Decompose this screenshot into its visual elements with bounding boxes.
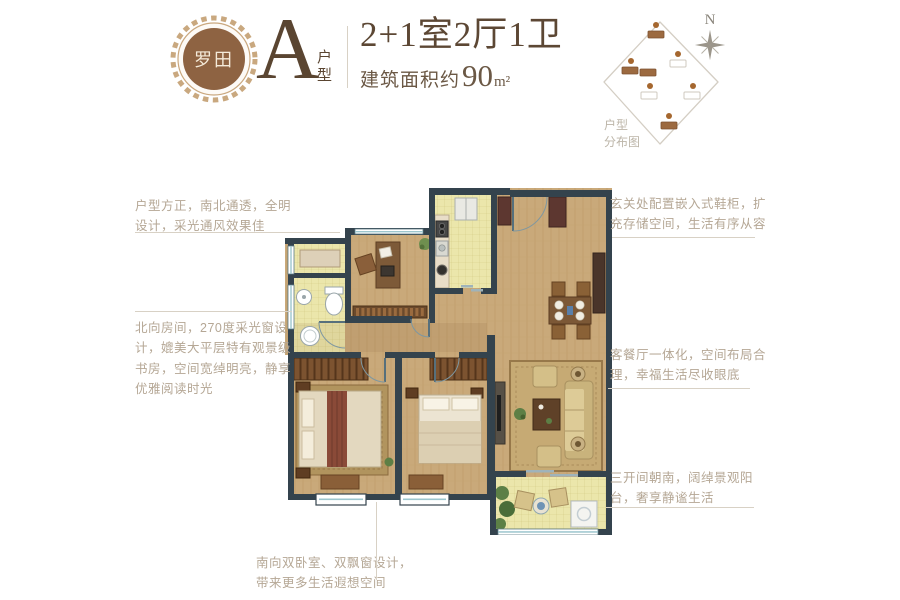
built-area: 建筑面积约 90 m² [360, 58, 510, 94]
leader-bottom [376, 502, 377, 580]
note-bottom: 南向双卧室、双飘窗设计， 带来更多生活遐想空间 [256, 553, 416, 594]
bay-window-bench [300, 250, 340, 267]
leader-right-middle [608, 388, 750, 389]
brand-badge-text: 罗田 [194, 50, 234, 70]
page-title: 2+1室2厅1卫 [360, 14, 563, 56]
unit-label-top: 户 [317, 50, 332, 67]
armchair [533, 366, 557, 387]
shoe-cabinet [498, 197, 511, 225]
bay-bench [409, 475, 443, 489]
note-left-middle: 北向房间，270度采光窗设 计，媲美大平层特有观景级 书房，空间宽绰明亮，静享 … [135, 318, 300, 399]
compass-star-icon [693, 28, 727, 62]
area-unit: m² [494, 74, 510, 91]
unit-type-letter: A [256, 2, 320, 98]
brand-medallion-icon: 罗田 [168, 13, 260, 105]
leader-right-bottom [606, 507, 754, 508]
living-room [495, 361, 602, 471]
note-right-middle: 客餐厅一体化，空间布局合 理，幸福生活尽收眼底 [610, 345, 770, 386]
floorplan-drawing [283, 185, 613, 535]
area-value: 90 [462, 58, 493, 94]
washing-machine [571, 501, 597, 527]
site-map-caption-line1: 户型 [604, 117, 640, 134]
leader-right-top [612, 237, 755, 238]
note-right-bottom: 三开间朝南，阔绰景观阳 台，奢享静谧生活 [610, 468, 770, 509]
unit-label-bottom: 型 [317, 68, 332, 85]
compass: N [692, 12, 728, 67]
armchair [537, 446, 561, 467]
unit-type-label: 户 型 [317, 50, 332, 85]
site-map-caption-line2: 分布图 [604, 134, 640, 151]
wardrobe [294, 358, 368, 380]
compass-north-label: N [692, 12, 728, 28]
note-left-top: 户型方正，南北通透，全明 设计，采光通风效果佳 [135, 196, 300, 237]
header-divider [347, 26, 348, 88]
storage-cabinet [549, 197, 566, 227]
leader-left-middle [135, 311, 292, 312]
leader-left-top [135, 232, 340, 233]
sideboard [593, 253, 605, 313]
area-prefix: 建筑面积约 [360, 65, 460, 92]
note-right-top: 玄关处配置嵌入式鞋柜，扩 充存储空间，生活有序从容 [610, 194, 770, 235]
hallway-floor [294, 323, 487, 352]
bay-bench [321, 475, 359, 489]
site-map-caption: 户型 分布图 [604, 117, 640, 152]
brand-badge: 罗田 [168, 13, 260, 105]
coffee-table [533, 399, 560, 430]
floorplan-page: 罗田 A 户 型 2+1室2厅1卫 建筑面积约 90 m² [0, 0, 900, 600]
